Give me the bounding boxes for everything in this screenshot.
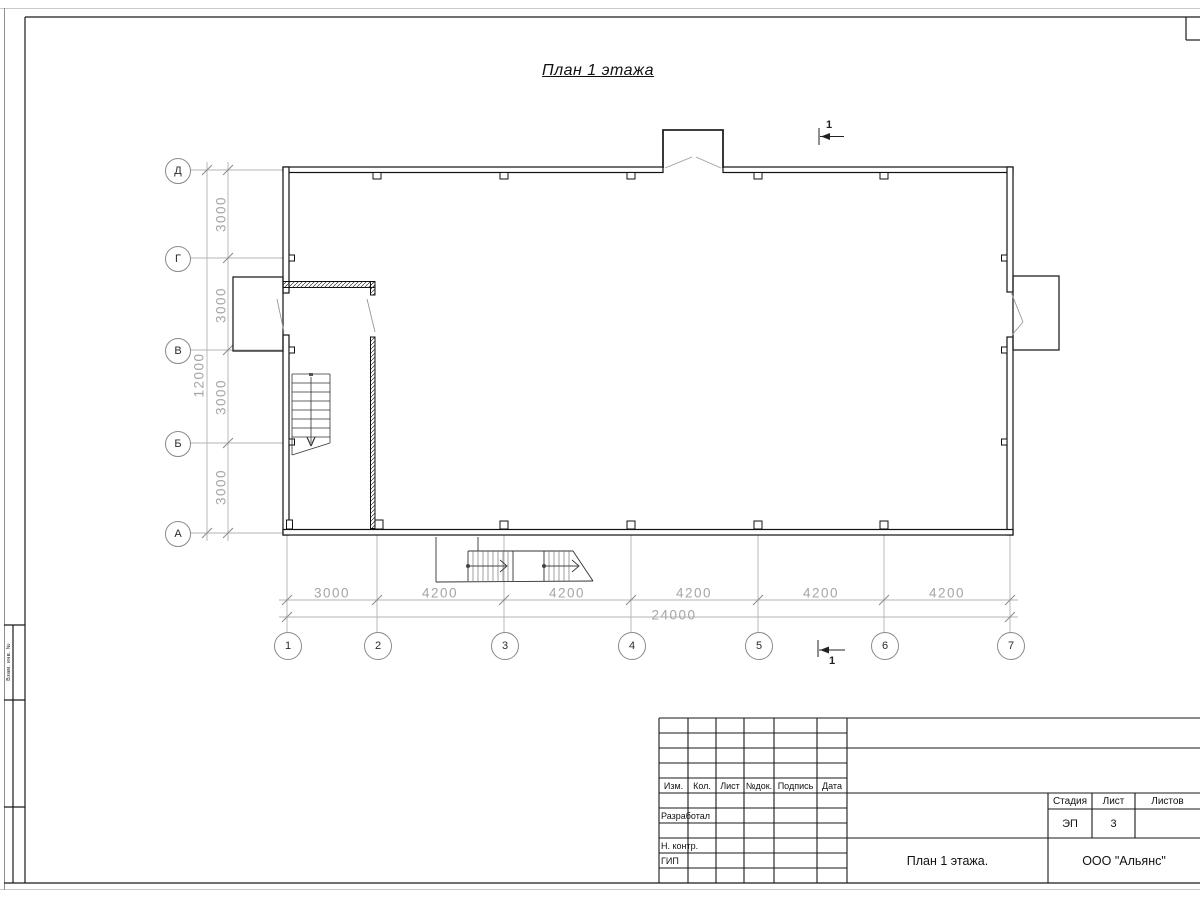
- tb-stage-value: ЭП: [1048, 809, 1092, 838]
- interior-stair: [292, 373, 330, 455]
- dim-left-1: 3000: [214, 196, 229, 232]
- tb-header-podpis: Подпись: [774, 778, 817, 793]
- row-axis-label-d: Д: [165, 158, 191, 184]
- col-axis-label-7: 7: [997, 632, 1025, 660]
- section-mark-bottom-label: 1: [829, 655, 835, 667]
- col-axis-label-2: 2: [364, 632, 392, 660]
- section-marks: [818, 128, 845, 657]
- vestibule-and-porches: [233, 130, 1059, 351]
- drawing-title: План 1 этажа: [542, 62, 654, 80]
- tb-role-gip: ГИП: [661, 853, 717, 868]
- tb-role-nkontr: Н. контр.: [661, 838, 717, 853]
- tb-sheet-label: Лист: [1092, 793, 1135, 809]
- col-axis-label-1: 1: [274, 632, 302, 660]
- col-axis-label-3: 3: [491, 632, 519, 660]
- dim-bottom-5: 4200: [803, 586, 839, 601]
- section-mark-top-label: 1: [826, 119, 832, 131]
- col-axis-label-5: 5: [745, 632, 773, 660]
- col-axis-label-4: 4: [618, 632, 646, 660]
- tb-company: ООО "Альянс": [1048, 838, 1200, 883]
- tb-header-list: Лист: [716, 778, 744, 793]
- col-axis-label-6: 6: [871, 632, 899, 660]
- dim-bottom-2: 4200: [422, 586, 458, 601]
- tb-header-data: Дата: [817, 778, 847, 793]
- dim-bottom-3: 4200: [549, 586, 585, 601]
- tb-stage-label: Стадия: [1048, 793, 1092, 809]
- tb-header-izm: Изм.: [659, 778, 688, 793]
- row-axis-label-a: А: [165, 521, 191, 547]
- dim-left-2: 3000: [214, 287, 229, 323]
- dim-bottom-total: 24000: [651, 608, 696, 623]
- dim-bottom-1: 3000: [314, 586, 350, 601]
- drawing-sheet: План 1 этажа Д Г В Б А 1 2 3 4 5 6 7 300…: [0, 0, 1200, 900]
- dim-left-4: 3000: [214, 469, 229, 505]
- wall-pilasters: [287, 173, 1008, 530]
- tb-sheet-value: 3: [1092, 809, 1135, 838]
- exterior-stair: [436, 537, 593, 582]
- row-axis-label-g: Г: [165, 246, 191, 272]
- row-axis-label-b: Б: [165, 431, 191, 457]
- dim-left-3: 3000: [214, 379, 229, 415]
- stairwell-walls: [283, 282, 375, 529]
- dim-bottom-6: 4200: [929, 586, 965, 601]
- tb-sheets-label: Листов: [1135, 793, 1200, 809]
- dimension-ticks: [202, 165, 1015, 622]
- exterior-walls: [283, 167, 1013, 535]
- tb-doc-title: План 1 этажа.: [847, 838, 1048, 883]
- dim-bottom-4: 4200: [676, 586, 712, 601]
- tb-header-kol: Кол.: [688, 778, 716, 793]
- dim-left-total: 12000: [192, 352, 207, 397]
- door-swing-lines: [277, 157, 1023, 335]
- tb-role-razrabotal: Разработал: [661, 808, 717, 823]
- axis-lines: [189, 162, 1018, 632]
- side-stamp-label: Взам. инв. №: [6, 643, 12, 681]
- tb-header-ndok: №док.: [744, 778, 774, 793]
- row-axis-label-v: В: [165, 338, 191, 364]
